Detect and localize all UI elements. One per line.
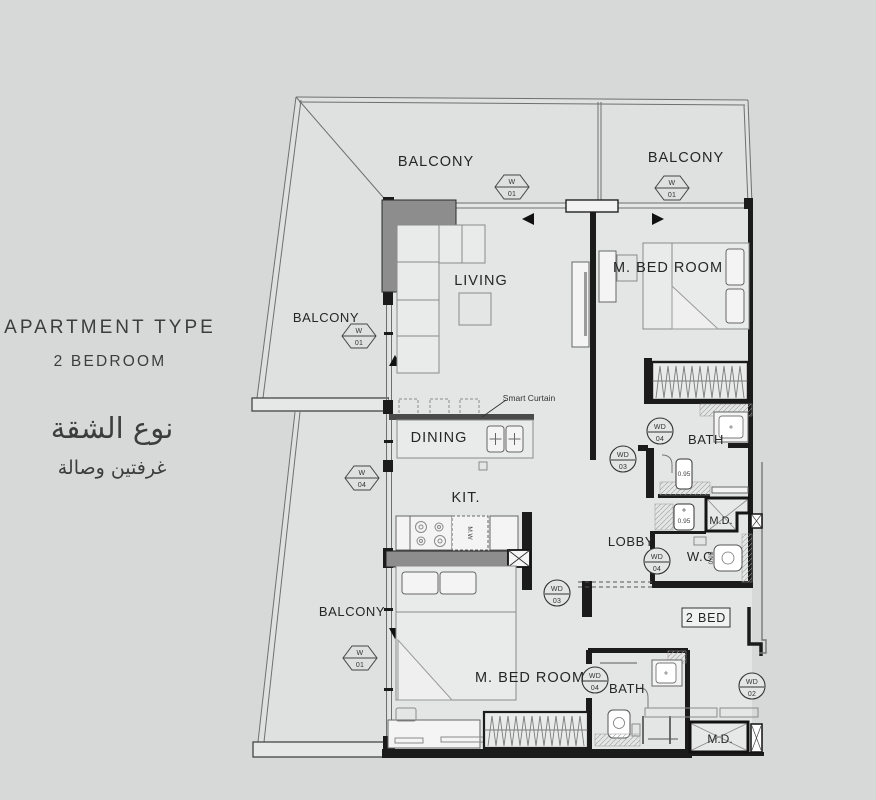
smart-curtain-track bbox=[389, 414, 534, 420]
apartment-type-title: APARTMENT TYPE bbox=[4, 317, 216, 338]
room-label-bedroom: M. BED ROOM bbox=[475, 670, 585, 686]
svg-text:01: 01 bbox=[668, 192, 676, 199]
bottom-wall bbox=[382, 749, 692, 758]
room-label-md: M.D. bbox=[709, 515, 732, 527]
door-tag: WD 04 bbox=[647, 418, 673, 444]
pillow bbox=[402, 572, 438, 594]
wall-junction-block bbox=[566, 200, 618, 212]
apartment-type-title-arabic: نوع الشقة bbox=[51, 411, 174, 445]
room-label-balcony: BALCONY bbox=[398, 154, 474, 170]
pillow bbox=[726, 289, 744, 323]
kitchen-wall-fill bbox=[386, 551, 508, 567]
dresser bbox=[599, 251, 616, 302]
apartment-type-subtitle-arabic: غرفتين وصالة bbox=[58, 457, 167, 479]
svg-text:04: 04 bbox=[653, 566, 661, 573]
svg-text:04: 04 bbox=[591, 685, 599, 692]
room-label-lobby: LOBBY bbox=[608, 534, 654, 549]
living-bedroom-partition bbox=[590, 212, 596, 460]
svg-text:WD: WD bbox=[589, 673, 601, 680]
tile-hatch bbox=[595, 734, 640, 746]
tv-screen bbox=[584, 272, 587, 336]
svg-text:04: 04 bbox=[656, 436, 664, 443]
door-tag: WD 04 bbox=[644, 548, 670, 574]
balcony-left-end-parapet bbox=[252, 398, 389, 411]
stove bbox=[410, 516, 452, 550]
door-tag: WD 03 bbox=[610, 446, 636, 472]
floor-plan-canvas: APARTMENT TYPE 2 BEDROOM نوع الشقة غرفتي… bbox=[0, 0, 876, 800]
pillow bbox=[726, 249, 744, 285]
door-tag: WD 02 bbox=[739, 673, 765, 699]
svg-text:WD: WD bbox=[746, 679, 758, 686]
svg-text:02: 02 bbox=[748, 691, 756, 698]
door-width: 0.95 bbox=[678, 471, 691, 478]
svg-text:WD: WD bbox=[654, 424, 666, 431]
svg-text:WD: WD bbox=[551, 586, 563, 593]
svg-text:01: 01 bbox=[356, 662, 364, 669]
toilet bbox=[714, 545, 742, 571]
svg-text:W: W bbox=[356, 328, 363, 335]
entry-jamb bbox=[582, 581, 592, 617]
room-label-dining: DINING bbox=[411, 430, 468, 446]
tv-cabinet bbox=[388, 720, 480, 748]
sofa bbox=[397, 225, 439, 373]
svg-text:01: 01 bbox=[508, 191, 516, 198]
info-panel: APARTMENT TYPE 2 BEDROOM نوع الشقة غرفتي… bbox=[4, 317, 216, 479]
balcony-bottom-floor bbox=[258, 412, 389, 743]
pillow bbox=[440, 572, 476, 594]
svg-text:WD: WD bbox=[617, 452, 629, 459]
site-line bbox=[759, 462, 766, 653]
room-label-balcony: BALCONY bbox=[648, 150, 724, 166]
door-tag: WD 03 bbox=[544, 580, 570, 606]
svg-text:WD: WD bbox=[651, 554, 663, 561]
room-label-balcony: BALCONY bbox=[319, 604, 385, 619]
door-leaf bbox=[674, 504, 694, 530]
room-label-bath: BATH bbox=[688, 432, 724, 447]
room-label-living: LIVING bbox=[454, 273, 508, 289]
svg-text:03: 03 bbox=[619, 464, 627, 471]
svg-text:W: W bbox=[359, 470, 366, 477]
unit-type-label: 2 BED bbox=[686, 611, 726, 625]
svg-text:04: 04 bbox=[358, 482, 366, 489]
room-label-bedroom: M. BED ROOM bbox=[613, 260, 723, 276]
svg-text:W: W bbox=[669, 180, 676, 187]
microwave-label: M.W bbox=[466, 526, 473, 540]
door-tag: WD 04 bbox=[582, 667, 608, 693]
room-label-wc: W.C bbox=[687, 549, 713, 564]
kitchen-sink-counter bbox=[490, 516, 518, 550]
svg-text:03: 03 bbox=[553, 598, 561, 605]
svg-text:W: W bbox=[357, 650, 364, 657]
room-label-md: M.D. bbox=[707, 732, 732, 746]
tile-hatch bbox=[742, 534, 752, 582]
door-width: 0.95 bbox=[678, 518, 691, 525]
svg-text:W: W bbox=[509, 179, 516, 186]
room-label-balcony: BALCONY bbox=[293, 310, 359, 325]
svg-text:01: 01 bbox=[355, 340, 363, 347]
room-label-bath: BATH bbox=[609, 681, 645, 696]
floor-plan-page: APARTMENT TYPE 2 BEDROOM نوع الشقة غرفتي… bbox=[0, 0, 876, 800]
shower-drain bbox=[712, 487, 748, 493]
apartment-type-subtitle: 2 BEDROOM bbox=[54, 353, 167, 370]
smart-curtain-note: Smart Curtain bbox=[503, 393, 556, 403]
unit-type-box: 2 BED bbox=[682, 608, 730, 627]
room-label-kitchen: KIT. bbox=[452, 490, 481, 506]
